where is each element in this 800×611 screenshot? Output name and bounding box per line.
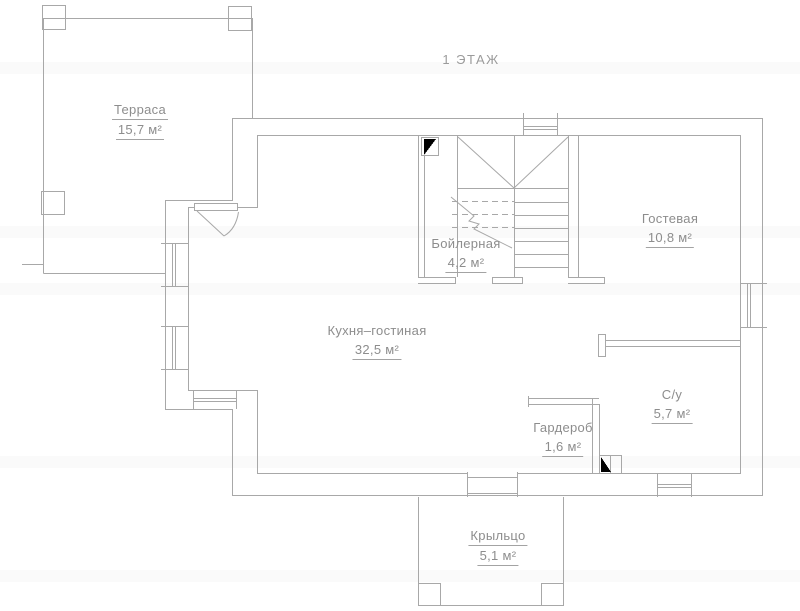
room-label-terrace: Терраса 15,7 м² <box>112 101 168 140</box>
wardrobe-door-marker <box>600 456 622 474</box>
room-label-kitchen-living: Кухня–гостиная 32,5 м² <box>327 322 426 360</box>
floor-title: 1 ЭТАЖ <box>442 52 499 67</box>
room-area: 5,7 м² <box>652 405 693 424</box>
room-label-guestroom: Гостевая 10,8 м² <box>642 210 698 248</box>
room-area: 5,1 м² <box>478 547 519 566</box>
window-top-wall <box>523 113 558 135</box>
plan-linework <box>0 0 800 611</box>
terrace-column <box>43 6 66 30</box>
room-name: Терраса <box>112 101 168 120</box>
exterior-wall-outer <box>166 119 763 496</box>
room-area: 10,8 м² <box>646 229 694 248</box>
room-area: 32,5 м² <box>353 341 401 360</box>
room-label-bathroom: С/у 5,7 м² <box>652 386 693 424</box>
porch-column <box>419 584 441 606</box>
entry-door-opening <box>467 472 518 497</box>
terrace-door <box>195 204 239 237</box>
room-name: Гостевая <box>642 210 698 228</box>
guestroom-bathroom-wall <box>599 335 741 357</box>
room-name: Гардероб <box>533 419 593 437</box>
terrace-column <box>42 192 65 215</box>
room-area: 4,2 м² <box>446 254 487 273</box>
window-bay-bottom <box>193 391 237 409</box>
room-name: Кухня–гостиная <box>327 322 426 340</box>
room-area: 1,6 м² <box>543 438 584 457</box>
window-bathroom-bottom <box>657 473 692 497</box>
room-name: С/у <box>652 386 693 404</box>
stair-right-wall <box>568 135 605 284</box>
room-area: 15,7 м² <box>116 121 164 140</box>
porch-column <box>542 584 564 606</box>
room-name: Крыльцо <box>468 527 527 546</box>
room-label-boiler: Бойлерная 4,2 м² <box>431 235 500 273</box>
room-label-wardrobe: Гардероб 1,6 м² <box>533 419 593 457</box>
boiler-door-marker <box>422 138 439 156</box>
room-label-porch: Крыльцо 5,1 м² <box>468 527 527 566</box>
floor-plan-canvas: 1 ЭТАЖ Терраса 15,7 м² Бойлерная 4,2 м² … <box>0 0 800 611</box>
room-name: Бойлерная <box>431 235 500 253</box>
